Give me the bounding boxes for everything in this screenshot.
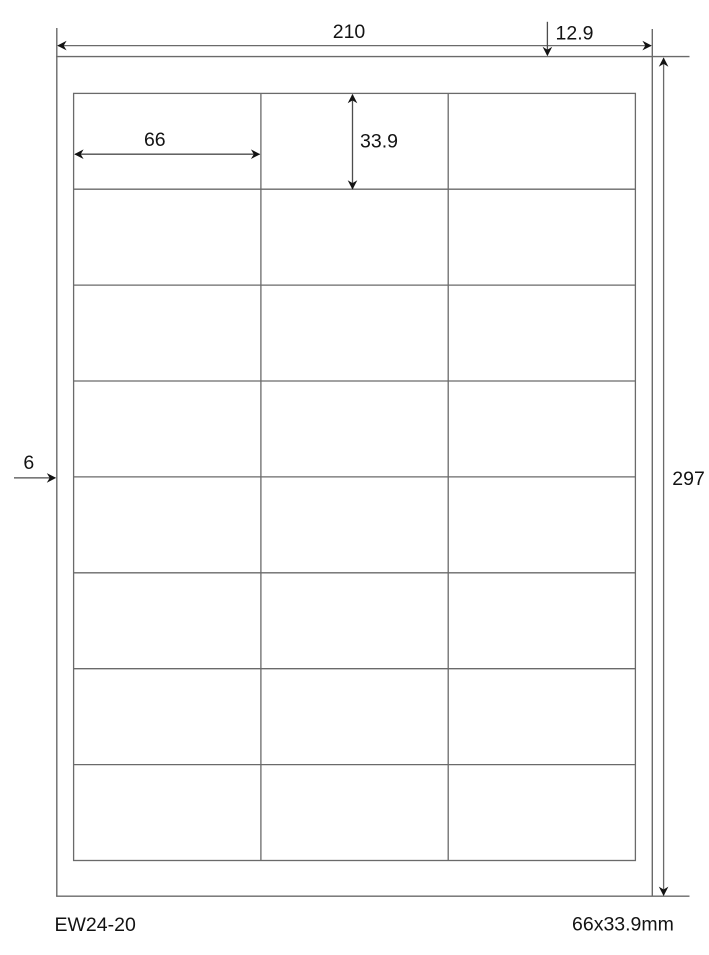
svg-text:EW24-20: EW24-20	[55, 914, 136, 936]
svg-text:33.9: 33.9	[360, 131, 398, 153]
svg-text:66: 66	[144, 129, 166, 151]
svg-text:12.9: 12.9	[556, 22, 594, 44]
svg-text:6: 6	[23, 452, 34, 474]
svg-text:210: 210	[333, 21, 366, 43]
svg-text:297: 297	[672, 468, 705, 490]
svg-text:66x33.9mm: 66x33.9mm	[572, 913, 674, 935]
